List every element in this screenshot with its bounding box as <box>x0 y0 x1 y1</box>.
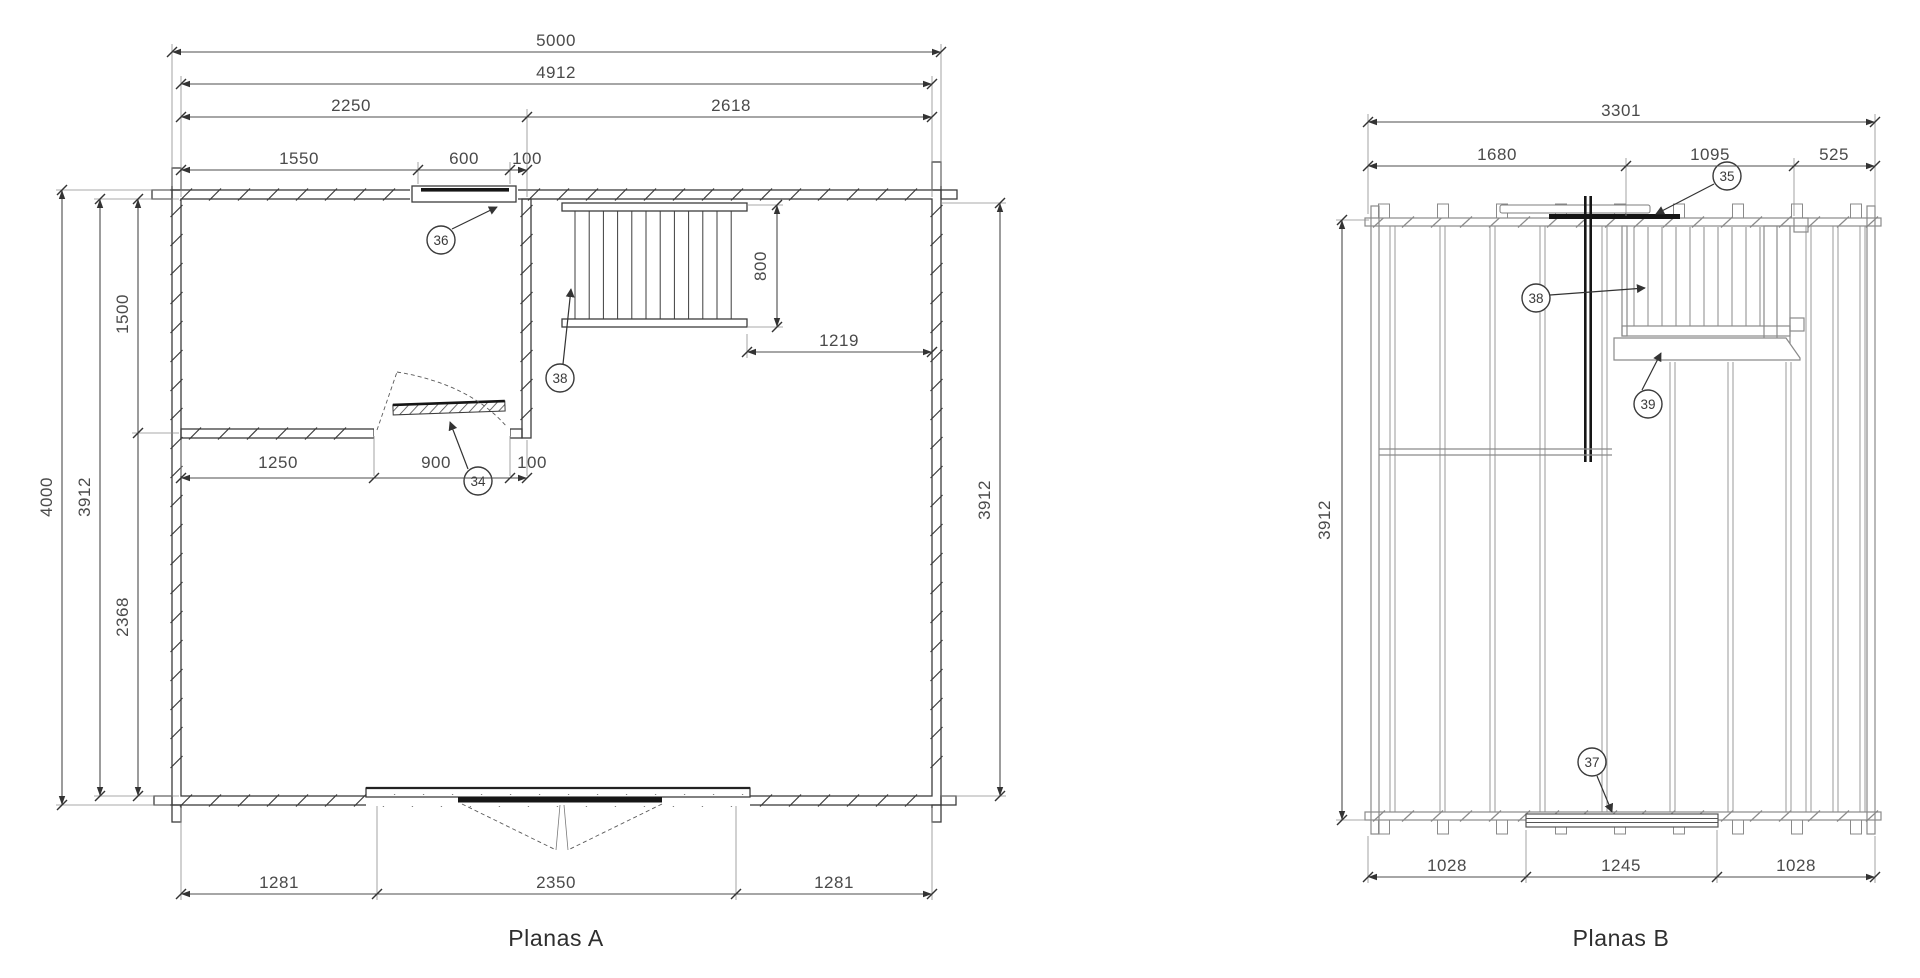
partition-wall-vertical <box>522 199 531 438</box>
dim-right-inner-height: 3912 <box>975 480 994 520</box>
callout-36: 36 <box>427 207 497 254</box>
door-opening <box>374 428 510 439</box>
wall-post <box>1851 820 1862 834</box>
dim-inner-height: 3912 <box>75 477 94 517</box>
plan-a-walls <box>152 162 957 822</box>
dim-room-top-height: 1500 <box>113 294 132 334</box>
door-34 <box>374 372 510 439</box>
door-leaf-left-swing <box>462 804 556 850</box>
callout-39-number: 39 <box>1640 397 1655 412</box>
wall-post <box>1379 820 1390 834</box>
dim-b-right-section: 525 <box>1819 145 1849 164</box>
wall-post <box>1733 820 1744 834</box>
dim-b-left-section: 1680 <box>1477 145 1517 164</box>
plan-a: 5000 4912 2250 2618 1550 600 100 4000 39… <box>37 31 994 951</box>
beam-line-left <box>1584 196 1587 462</box>
double-door-header <box>458 797 662 803</box>
door-leaf-right-swing <box>568 804 662 850</box>
dim-room-bottom-height: 2368 <box>113 597 132 637</box>
callout-36-leader <box>452 207 497 229</box>
loft-header-bar <box>1549 214 1680 219</box>
wall-post <box>1792 820 1803 834</box>
window-sash <box>421 188 509 192</box>
threshold-37 <box>1526 814 1718 827</box>
dim-inner-width: 4912 <box>536 63 576 82</box>
wall-post <box>1379 204 1390 218</box>
dim-room-right-width: 2618 <box>711 96 751 115</box>
center-beam <box>1584 196 1592 462</box>
log-end-top-left-h <box>152 190 172 199</box>
plan-a-title: Planas A <box>508 925 604 951</box>
loft-edge-board <box>1500 205 1650 213</box>
wall-post <box>1438 204 1449 218</box>
wall-post <box>1851 204 1862 218</box>
door-leaf-right <box>564 805 568 850</box>
railing-bottom-rail <box>1622 326 1790 336</box>
callout-38-plan-a: 38 <box>546 289 574 392</box>
dim-overall-width: 5000 <box>536 31 576 50</box>
callout-38b-leader <box>1550 288 1645 295</box>
dim-door-width: 900 <box>421 453 451 472</box>
threshold-bar <box>1526 814 1718 827</box>
plan-b-walls <box>1365 206 1881 834</box>
floorplan-drawing: 5000 4912 2250 2618 1550 600 100 4000 39… <box>0 0 1920 978</box>
wall-post <box>1733 204 1744 218</box>
stairs-plan-a <box>562 203 747 327</box>
plan-a-inner-wall <box>181 199 932 796</box>
callout-35-number: 35 <box>1719 169 1734 184</box>
partition-wall-stub <box>510 429 522 438</box>
generated-dimension-layer <box>56 44 1880 900</box>
callout-38a-number: 38 <box>552 371 567 386</box>
callout-37-number: 37 <box>1584 755 1599 770</box>
dim-b-bottom-right: 1028 <box>1776 856 1816 875</box>
door-swing-arc <box>397 372 507 427</box>
callout-35: 35 <box>1656 162 1741 214</box>
log-end-bottom-left-v <box>172 805 181 822</box>
stair-bottom-rail <box>562 319 747 327</box>
dim-door-bottom-width: 2350 <box>536 873 576 892</box>
dim-door-gap: 100 <box>517 453 547 472</box>
railing-notch <box>1790 318 1804 331</box>
beam-line-right <box>1589 196 1592 462</box>
dim-b-inner-height: 3912 <box>1315 500 1334 540</box>
door-open-position <box>377 372 397 430</box>
log-end-top-right-v <box>932 162 941 190</box>
dim-overall-height: 4000 <box>37 477 56 517</box>
callout-39: 39 <box>1634 353 1662 418</box>
log-end-bottom-right-v <box>932 805 941 822</box>
wall-post <box>1497 820 1508 834</box>
dim-b-middle-section: 1095 <box>1690 145 1730 164</box>
wall-post <box>1438 820 1449 834</box>
dim-stair-clear: 1219 <box>819 331 859 350</box>
window-36 <box>410 186 518 202</box>
callout-37-leader <box>1597 776 1612 812</box>
callout-34-number: 34 <box>470 474 486 489</box>
log-end-top-right-h <box>941 190 957 199</box>
wall-post <box>1792 204 1803 218</box>
dim-window-width: 600 <box>449 149 479 168</box>
callout-36-number: 36 <box>433 233 448 248</box>
railing-38 <box>1622 218 1808 352</box>
double-door-bottom <box>366 788 750 850</box>
dim-door-offset: 1250 <box>258 453 298 472</box>
partition-wall-horizontal <box>181 429 374 438</box>
landing-board-39 <box>1614 338 1800 360</box>
dim-stair-depth: 800 <box>751 251 770 281</box>
dim-room-left-width: 2250 <box>331 96 371 115</box>
stair-top-rail <box>562 203 747 211</box>
dim-door-bottom-right: 1281 <box>814 873 854 892</box>
plan-b-right-wall <box>1867 206 1875 834</box>
dim-b-overall-width: 3301 <box>1601 101 1641 120</box>
plan-b-title: Planas B <box>1573 925 1670 951</box>
log-end-bottom-left-h <box>154 796 172 805</box>
railing-left-edge <box>1622 226 1627 336</box>
log-end-bottom-right-h <box>941 796 956 805</box>
dim-b-bottom-middle: 1245 <box>1601 856 1641 875</box>
plan-b-top-wall <box>1365 218 1881 226</box>
plan-a-outer-wall <box>172 190 941 805</box>
dim-window-offset: 1550 <box>279 149 319 168</box>
drawing-canvas: 5000 4912 2250 2618 1550 600 100 4000 39… <box>0 0 1920 978</box>
dim-door-bottom-left: 1281 <box>259 873 299 892</box>
dim-b-bottom-left: 1028 <box>1427 856 1467 875</box>
plan-b-left-wall <box>1371 206 1379 834</box>
callout-38b-number: 38 <box>1528 291 1543 306</box>
door-leaf-left <box>556 805 560 850</box>
